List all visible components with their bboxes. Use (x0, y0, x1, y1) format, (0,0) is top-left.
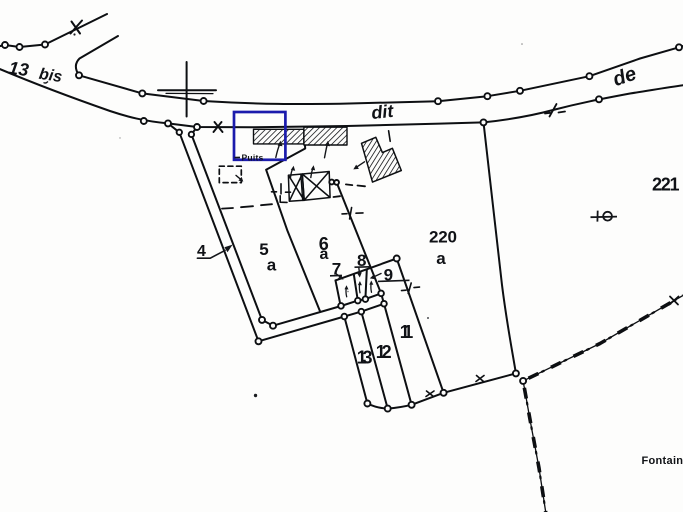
svg-text:a: a (436, 249, 446, 268)
svg-text:a: a (320, 246, 329, 263)
svg-text:12: 12 (376, 342, 392, 362)
svg-text:a: a (267, 256, 277, 275)
svg-text:13: 13 (7, 58, 30, 81)
svg-text:Fontaine: Fontaine (642, 455, 683, 467)
svg-text:221: 221 (652, 175, 680, 195)
svg-text:4: 4 (197, 243, 206, 260)
svg-text:Puits: Puits (242, 153, 264, 163)
svg-text:13: 13 (357, 347, 373, 367)
svg-text:220: 220 (429, 228, 457, 247)
svg-text:dit: dit (370, 101, 395, 123)
svg-text:11: 11 (400, 322, 414, 342)
svg-text:bis: bis (38, 66, 64, 86)
